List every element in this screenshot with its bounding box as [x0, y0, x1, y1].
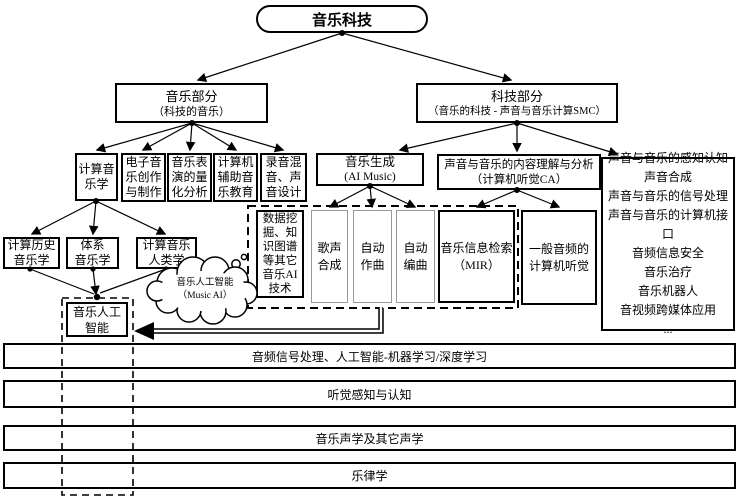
- list-item-ellipsis: ...: [664, 320, 673, 339]
- music-part-node: 音乐部分 （科技的音乐）: [115, 83, 268, 123]
- general-audio-computer-audition-node: 一般音频的 计算机听觉: [521, 210, 597, 305]
- tech-part-subtitle: （音乐的科技 - 声音与音乐计算SMC）: [428, 105, 606, 119]
- root-label: 音乐科技: [312, 9, 372, 30]
- computational-ethnomusicology-label: 计算音乐 人类学: [142, 238, 190, 268]
- automatic-arrangement-label: 自动 编曲: [403, 240, 427, 274]
- music-generation-subtitle: (AI Music): [344, 170, 395, 184]
- thought-cloud-label: 音乐人工智能 （Music AI）: [156, 277, 254, 303]
- list-item: 声音合成: [644, 168, 692, 187]
- mir-label: 音乐信息检索 （MIR）: [440, 240, 512, 274]
- tech-part-title: 科技部分: [491, 88, 543, 105]
- big-arrow: [134, 306, 381, 340]
- performance-analysis-label: 音乐表 演的量 化分析: [171, 155, 207, 200]
- computer-aided-music-education-node: 计算机 辅助音 乐教育: [213, 153, 258, 202]
- music-part-title: 音乐部分: [165, 88, 217, 105]
- list-item: 声音与音乐的计算机接口: [603, 206, 733, 244]
- computational-musicology-label: 计算音 乐学: [78, 162, 114, 192]
- computational-musicology-node: 计算音 乐学: [75, 153, 118, 201]
- sound-music-tech-list: 声音与音乐的感知认知 声音合成 声音与音乐的信号处理 声音与音乐的计算机接口 音…: [601, 157, 735, 331]
- singing-synthesis-node: 歌声 合成: [311, 210, 348, 303]
- music-information-retrieval-node: 音乐信息检索 （MIR）: [438, 210, 515, 303]
- automatic-composition-node: 自动 作曲: [353, 210, 392, 303]
- list-item: 音乐治疗: [644, 263, 692, 282]
- list-item: 音频信息安全: [632, 244, 704, 263]
- data-mining-knowledge-graph-node: 数据挖 掘、知 识图谱 等其它 音乐AI 技术: [256, 210, 304, 298]
- singing-synthesis-label: 歌声 合成: [317, 240, 341, 274]
- foundation-bar-label: 音频信号处理、人工智能-机器学习/深度学习: [252, 348, 487, 365]
- content-analysis-title: 声音与音乐的内容理解与分析: [444, 158, 594, 173]
- electronic-music-creation-node: 电子音 乐创作 与制作: [121, 153, 166, 202]
- music-ai-label: 音乐人工 智能: [73, 304, 121, 336]
- foundation-bar-music-acoustics: 音乐声学及其它声学: [3, 425, 736, 451]
- data-mining-label: 数据挖 掘、知 识图谱 等其它 音乐AI 技术: [262, 212, 297, 296]
- content-analysis-subtitle: （计算机听觉CA）: [471, 173, 567, 187]
- systematic-musicology-node: 体系 音乐学: [66, 237, 119, 269]
- tech-part-node: 科技部分 （音乐的科技 - 声音与音乐计算SMC）: [416, 83, 618, 123]
- list-item: 声音与音乐的信号处理: [608, 187, 728, 206]
- music-generation-node: 音乐生成 (AI Music): [316, 153, 424, 186]
- computational-ethnomusicology-node: 计算音乐 人类学: [136, 237, 197, 269]
- general-audio-label: 一般音频的 计算机听觉: [529, 241, 589, 275]
- foundation-bar-temperament: 乐律学: [3, 462, 736, 489]
- foundation-bar-auditory-perception: 听觉感知与认知: [3, 380, 736, 408]
- automatic-arrangement-node: 自动 编曲: [396, 210, 435, 303]
- list-item: 音视频跨媒体应用: [620, 301, 716, 320]
- foundation-bar-label: 音乐声学及其它声学: [315, 430, 423, 447]
- list-item: 声音与音乐的感知认知: [608, 149, 728, 168]
- computational-historical-musicology-label: 计算历史 音乐学: [7, 238, 55, 268]
- electronic-music-creation-label: 电子音 乐创作 与制作: [125, 155, 161, 200]
- foundation-bar-label: 乐律学: [351, 467, 387, 484]
- performance-analysis-node: 音乐表 演的量 化分析: [167, 153, 212, 202]
- systematic-musicology-label: 体系 音乐学: [74, 238, 110, 268]
- automatic-composition-label: 自动 作曲: [360, 240, 384, 274]
- recording-mixing-sound-design-label: 录音混 音、声 音设计: [265, 155, 301, 200]
- music-technology-diagram: 音乐科技 音乐部分 （科技的音乐） 科技部分 （音乐的科技 - 声音与音乐计算S…: [0, 0, 739, 500]
- recording-mixing-sound-design-node: 录音混 音、声 音设计: [260, 153, 307, 202]
- content-analysis-node: 声音与音乐的内容理解与分析 （计算机听觉CA）: [437, 154, 601, 190]
- music-ai-node: 音乐人工 智能: [66, 302, 128, 337]
- music-part-subtitle: （科技的音乐）: [153, 105, 230, 119]
- foundation-bar-label: 听觉感知与认知: [327, 386, 411, 403]
- root-node-music-technology: 音乐科技: [256, 5, 428, 33]
- list-item: 音乐机器人: [638, 282, 698, 301]
- music-generation-title: 音乐生成: [345, 155, 395, 170]
- computer-aided-music-education-label: 计算机 辅助音 乐教育: [217, 155, 253, 200]
- foundation-bar-signal-processing: 音频信号处理、人工智能-机器学习/深度学习: [3, 343, 736, 369]
- computational-historical-musicology-node: 计算历史 音乐学: [3, 237, 60, 269]
